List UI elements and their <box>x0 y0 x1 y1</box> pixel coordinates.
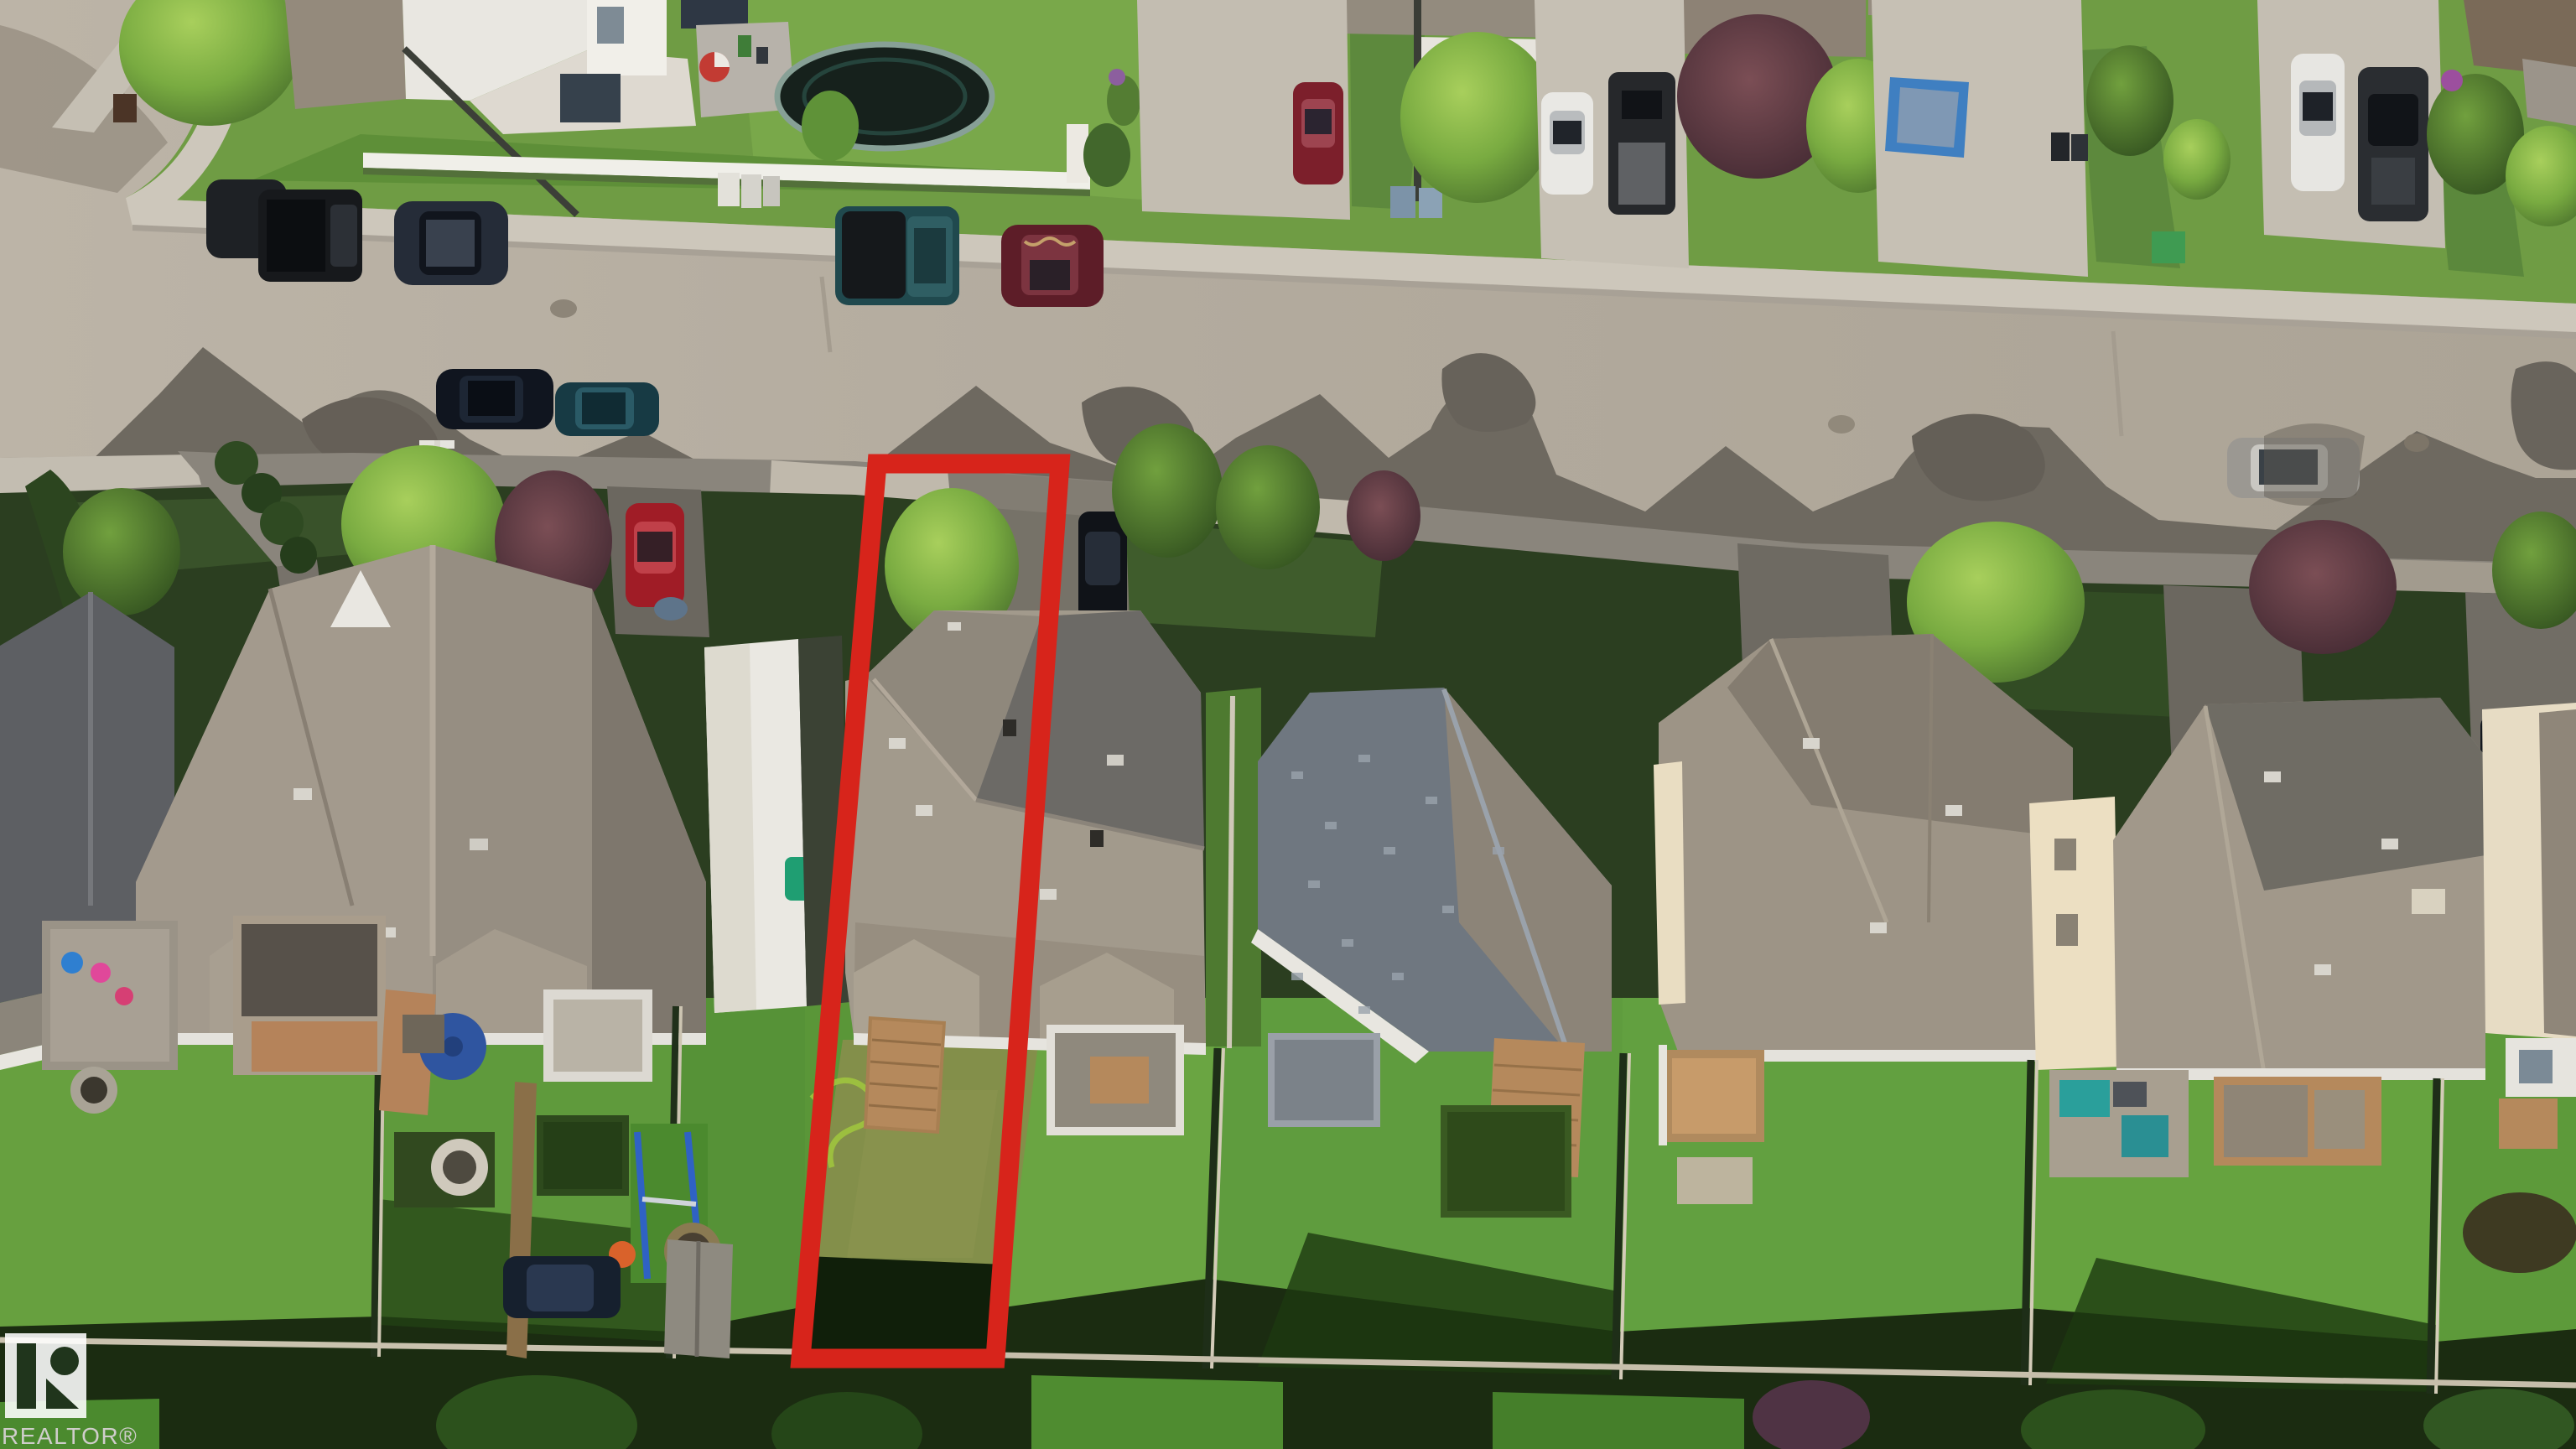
svg-text:REALTOR®: REALTOR® <box>2 1423 138 1449</box>
